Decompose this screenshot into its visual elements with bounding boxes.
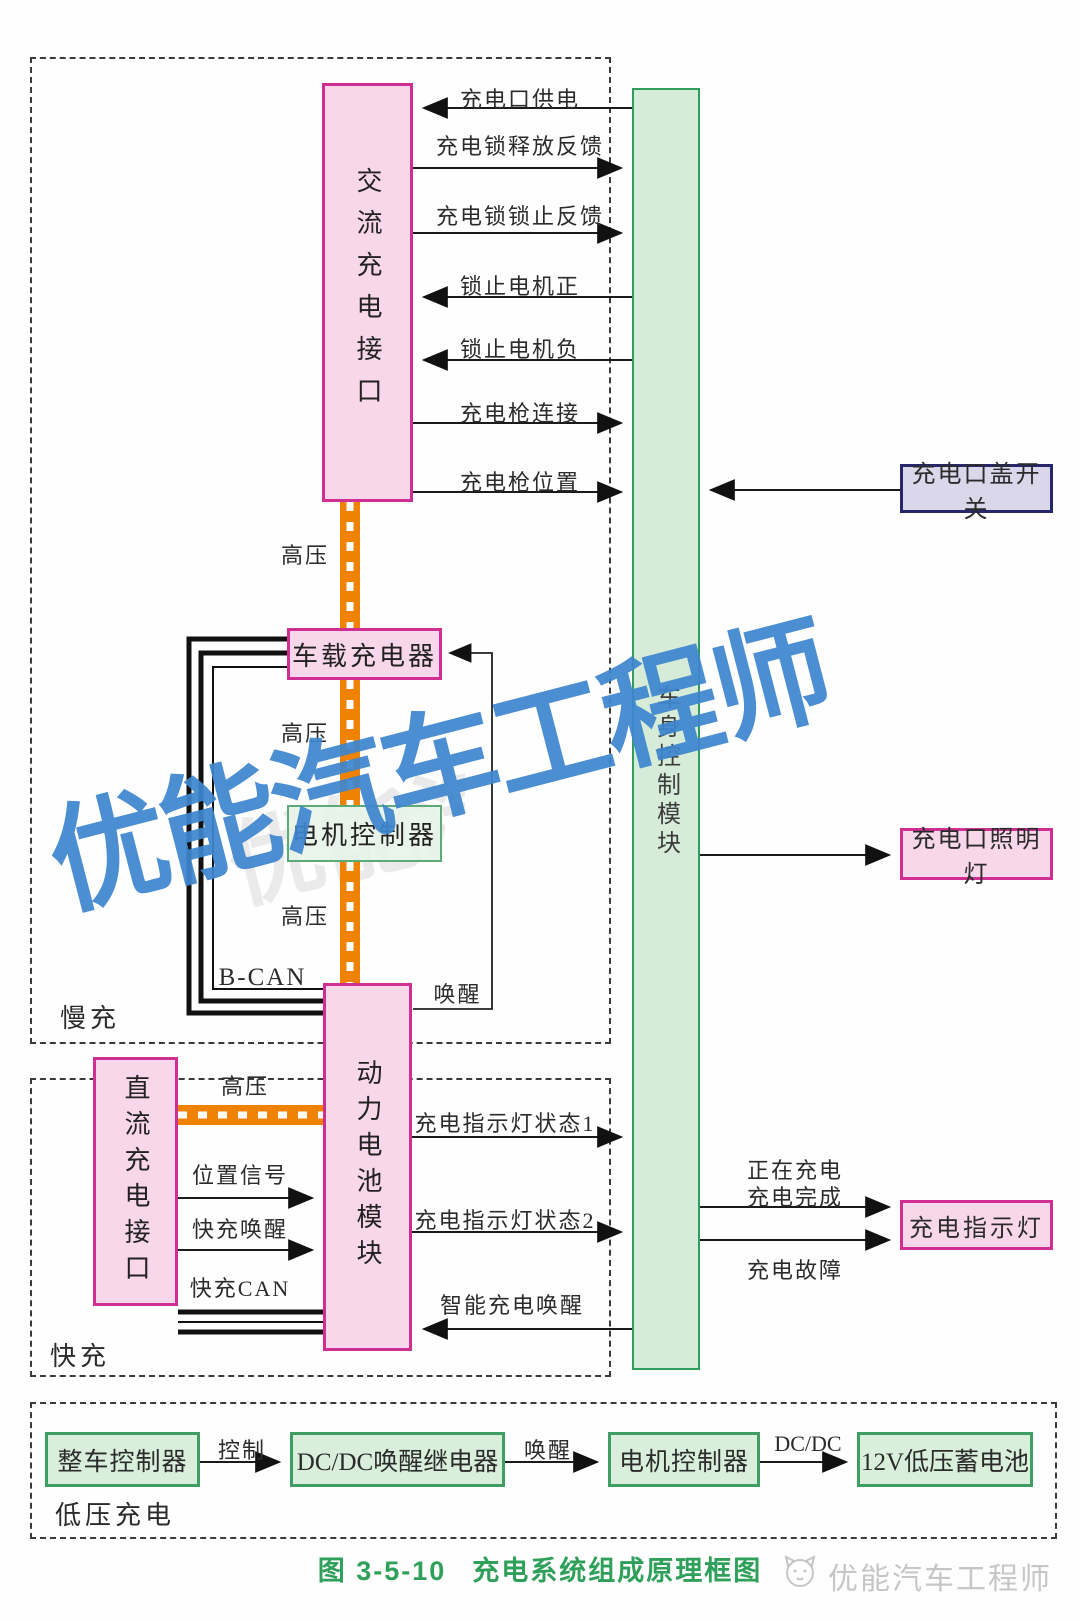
signal-lock-locked-feedback: 充电锁锁止反馈: [420, 199, 620, 231]
footer-logo: 优能汽车工程师: [780, 1552, 1052, 1600]
battery-12v-box: 12V低压蓄电池: [857, 1432, 1033, 1487]
signal-wake-low: 唤醒: [513, 1433, 583, 1465]
slow-charge-section-label: 慢充: [60, 998, 120, 1035]
onboard-charger-label: 车载充电器: [292, 636, 437, 673]
motor-controller-mid-label: 电机控制器: [292, 815, 437, 852]
footer-logo-text: 优能汽车工程师: [828, 1554, 1052, 1598]
signal-wake-slow: 唤醒: [410, 977, 505, 1009]
fast-charge-section-label: 快充: [50, 1336, 110, 1373]
signal-lock-release-feedback: 充电锁释放反馈: [420, 129, 620, 161]
signal-b-can: B-CAN: [200, 964, 325, 992]
signal-hv-fast: 高压: [210, 1069, 280, 1101]
signal-gun-position: 充电枪位置: [420, 465, 620, 497]
onboard-charger-box: 车载充电器: [287, 628, 442, 680]
signal-charging-fault: 充电故障: [730, 1253, 860, 1285]
signal-charging-done: 充电完成: [730, 1180, 860, 1212]
charge-indicator-lamp-label: 充电指示灯: [909, 1208, 1044, 1243]
connector-wires: [0, 0, 1080, 1621]
power-battery-module-label: 动力电池模块: [349, 1059, 386, 1275]
figure-number: 图 3-5-10: [318, 1556, 447, 1586]
figure-title: 充电系统组成原理框图: [472, 1556, 762, 1586]
body-control-module-bar: 车身控制模块: [632, 88, 700, 1370]
signal-fast-can: 快充CAN: [180, 1271, 300, 1303]
figure-caption: 图 3-5-10充电系统组成原理框图: [240, 1549, 840, 1588]
dc-charge-port-box: 直流充电接口: [93, 1057, 178, 1306]
signal-gun-connect: 充电枪连接: [420, 396, 620, 428]
power-battery-module-box: 动力电池模块: [323, 983, 412, 1351]
signal-control: 控制: [207, 1433, 277, 1465]
charge-port-cover-switch-label: 充电口盖开关: [903, 454, 1050, 524]
vehicle-controller-box: 整车控制器: [45, 1432, 200, 1487]
ac-charge-port-label: 交流充电接口: [349, 167, 386, 419]
signal-dcdc: DC/DC: [758, 1431, 858, 1457]
charge-port-cover-switch-box: 充电口盖开关: [900, 464, 1053, 513]
signal-lock-motor-negative: 锁止电机负: [420, 332, 620, 364]
signal-indicator-status2: 充电指示灯状态2: [405, 1203, 605, 1235]
dcdc-wake-relay-box: DC/DC唤醒继电器: [290, 1432, 505, 1487]
fast-can-bus: [178, 1312, 323, 1332]
signal-fast-wake: 快充唤醒: [180, 1212, 300, 1244]
signal-position: 位置信号: [180, 1158, 300, 1190]
charge-indicator-lamp-box: 充电指示灯: [900, 1200, 1053, 1250]
charge-port-lamp-label: 充电口照明灯: [903, 819, 1050, 889]
motor-controller-low-box: 电机控制器: [608, 1432, 760, 1487]
signal-hv-2: 高压: [270, 716, 340, 748]
charge-port-lamp-box: 充电口照明灯: [900, 828, 1053, 880]
ac-charge-port-box: 交流充电接口: [322, 83, 413, 502]
dcdc-wake-relay-label: DC/DC唤醒继电器: [297, 1442, 498, 1478]
battery-12v-label: 12V低压蓄电池: [861, 1442, 1029, 1478]
signal-lock-motor-positive: 锁止电机正: [420, 269, 620, 301]
vehicle-controller-label: 整车控制器: [57, 1442, 187, 1478]
right-signal-lines: [700, 490, 900, 1240]
low-voltage-section-label: 低压充电: [55, 1495, 175, 1532]
cat-logo-icon: [780, 1552, 820, 1600]
body-control-module-label: 车身控制模块: [649, 685, 684, 859]
motor-controller-mid-box: 电机控制器: [287, 805, 442, 862]
signal-hv-1: 高压: [270, 538, 340, 570]
charging-system-diagram: 慢充 快充 低压充电 优能汽车工程师: [0, 0, 1080, 1621]
signal-port-power: 充电口供电: [420, 82, 620, 114]
body-control-module-label-wrap: 车身控制模块: [634, 685, 698, 859]
signal-hv-3: 高压: [270, 899, 340, 931]
signal-smart-charge-wake: 智能充电唤醒: [412, 1288, 612, 1320]
signal-indicator-status1: 充电指示灯状态1: [405, 1106, 605, 1138]
motor-controller-low-label: 电机控制器: [619, 1442, 749, 1478]
dc-charge-port-label: 直流充电接口: [117, 1074, 154, 1290]
